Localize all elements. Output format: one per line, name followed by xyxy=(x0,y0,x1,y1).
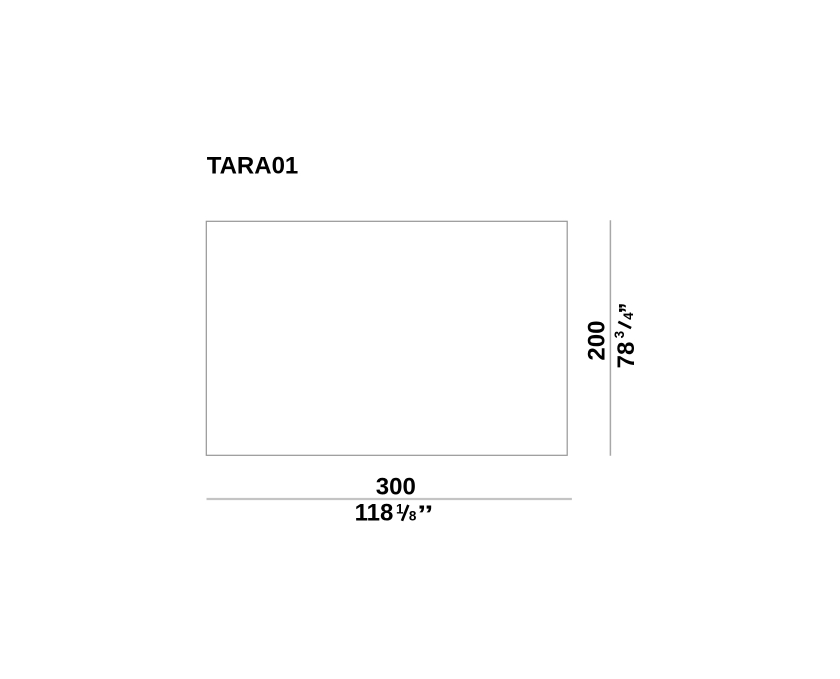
svg-text:200: 200 xyxy=(583,321,610,361)
svg-text:’: ’ xyxy=(424,501,433,528)
svg-text:TARA01: TARA01 xyxy=(207,152,299,179)
svg-text:8: 8 xyxy=(409,509,417,524)
svg-text:300: 300 xyxy=(376,474,416,501)
svg-text:78: 78 xyxy=(613,342,640,369)
svg-text:3: 3 xyxy=(612,330,627,338)
svg-text:’: ’ xyxy=(614,303,641,310)
svg-text:1: 1 xyxy=(396,502,404,517)
svg-text:118: 118 xyxy=(355,500,394,527)
